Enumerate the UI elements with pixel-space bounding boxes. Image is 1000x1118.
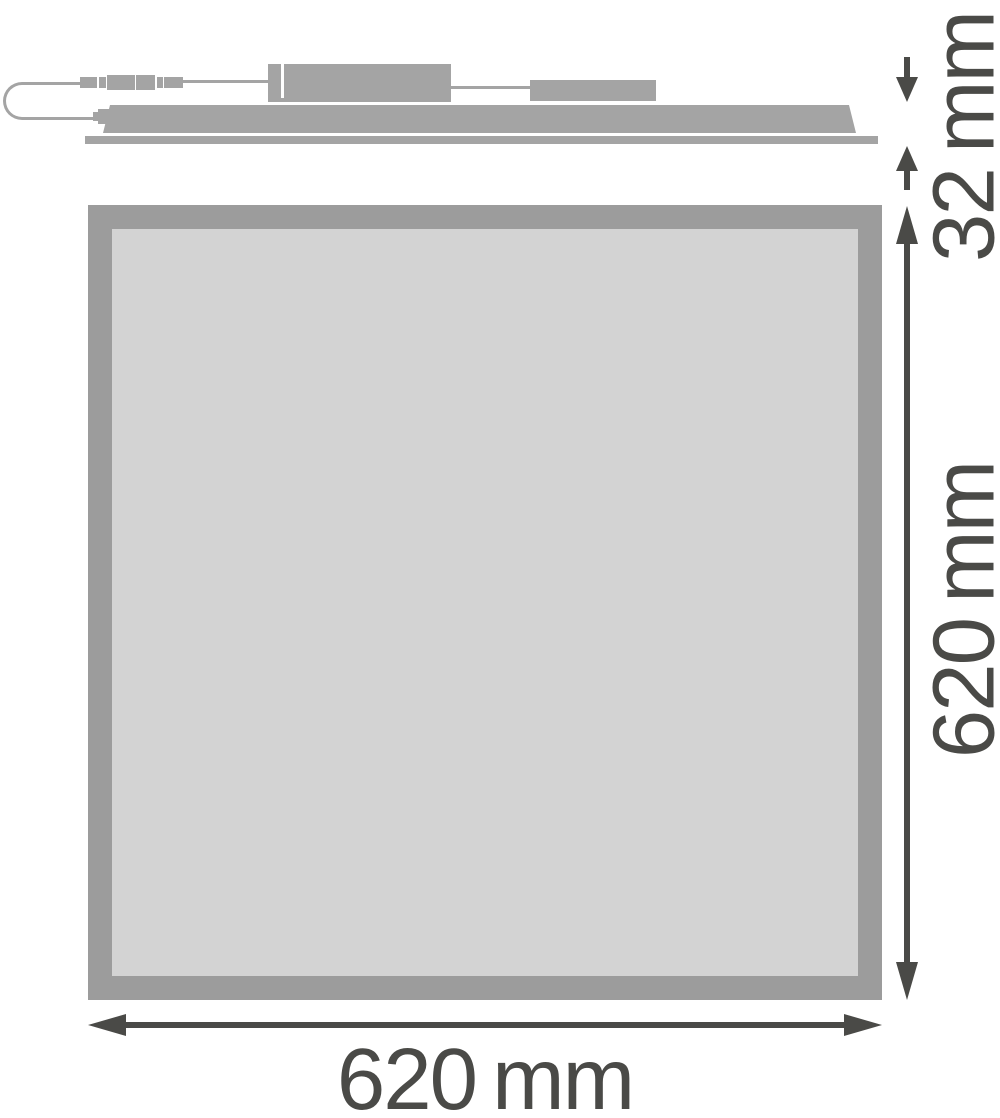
panel-front-face bbox=[112, 229, 858, 976]
connector-segment bbox=[157, 77, 163, 88]
connector-segment bbox=[136, 75, 155, 90]
dimension-drawing: 32 mm 620 mm 620 mm bbox=[0, 0, 1000, 1118]
width-dim-right-arrow-icon bbox=[844, 1014, 882, 1036]
height-dim-up-arrow-icon bbox=[896, 206, 918, 244]
power-cable-lower-segment bbox=[77, 117, 94, 120]
panel-cable-socket bbox=[98, 109, 111, 124]
depth-dim-upper-shaft bbox=[904, 57, 910, 79]
depth-dim-lower-shaft bbox=[904, 169, 910, 190]
width-dimension-label: 620 mm bbox=[337, 1036, 633, 1118]
led-driver-box bbox=[268, 64, 451, 102]
connector-segment bbox=[164, 77, 183, 88]
height-dim-down-arrow-icon bbox=[896, 962, 918, 1000]
cable-between-boxes bbox=[451, 86, 530, 89]
connector-segment bbox=[99, 77, 106, 88]
connector-segment bbox=[107, 75, 135, 90]
height-dimension-label: 620 mm bbox=[921, 462, 1000, 758]
height-dim-shaft bbox=[904, 240, 910, 965]
power-cable-loop bbox=[3, 82, 80, 120]
connector-segment bbox=[80, 77, 97, 88]
junction-box bbox=[530, 80, 656, 101]
panel-side-profile bbox=[103, 105, 856, 133]
depth-dimension-label: 32 mm bbox=[921, 12, 1000, 262]
panel-base-plate bbox=[85, 136, 878, 144]
driver-box-divider bbox=[281, 64, 284, 98]
width-dim-shaft bbox=[124, 1022, 846, 1028]
width-dim-left-arrow-icon bbox=[88, 1014, 126, 1036]
cable-to-driver bbox=[183, 80, 268, 83]
